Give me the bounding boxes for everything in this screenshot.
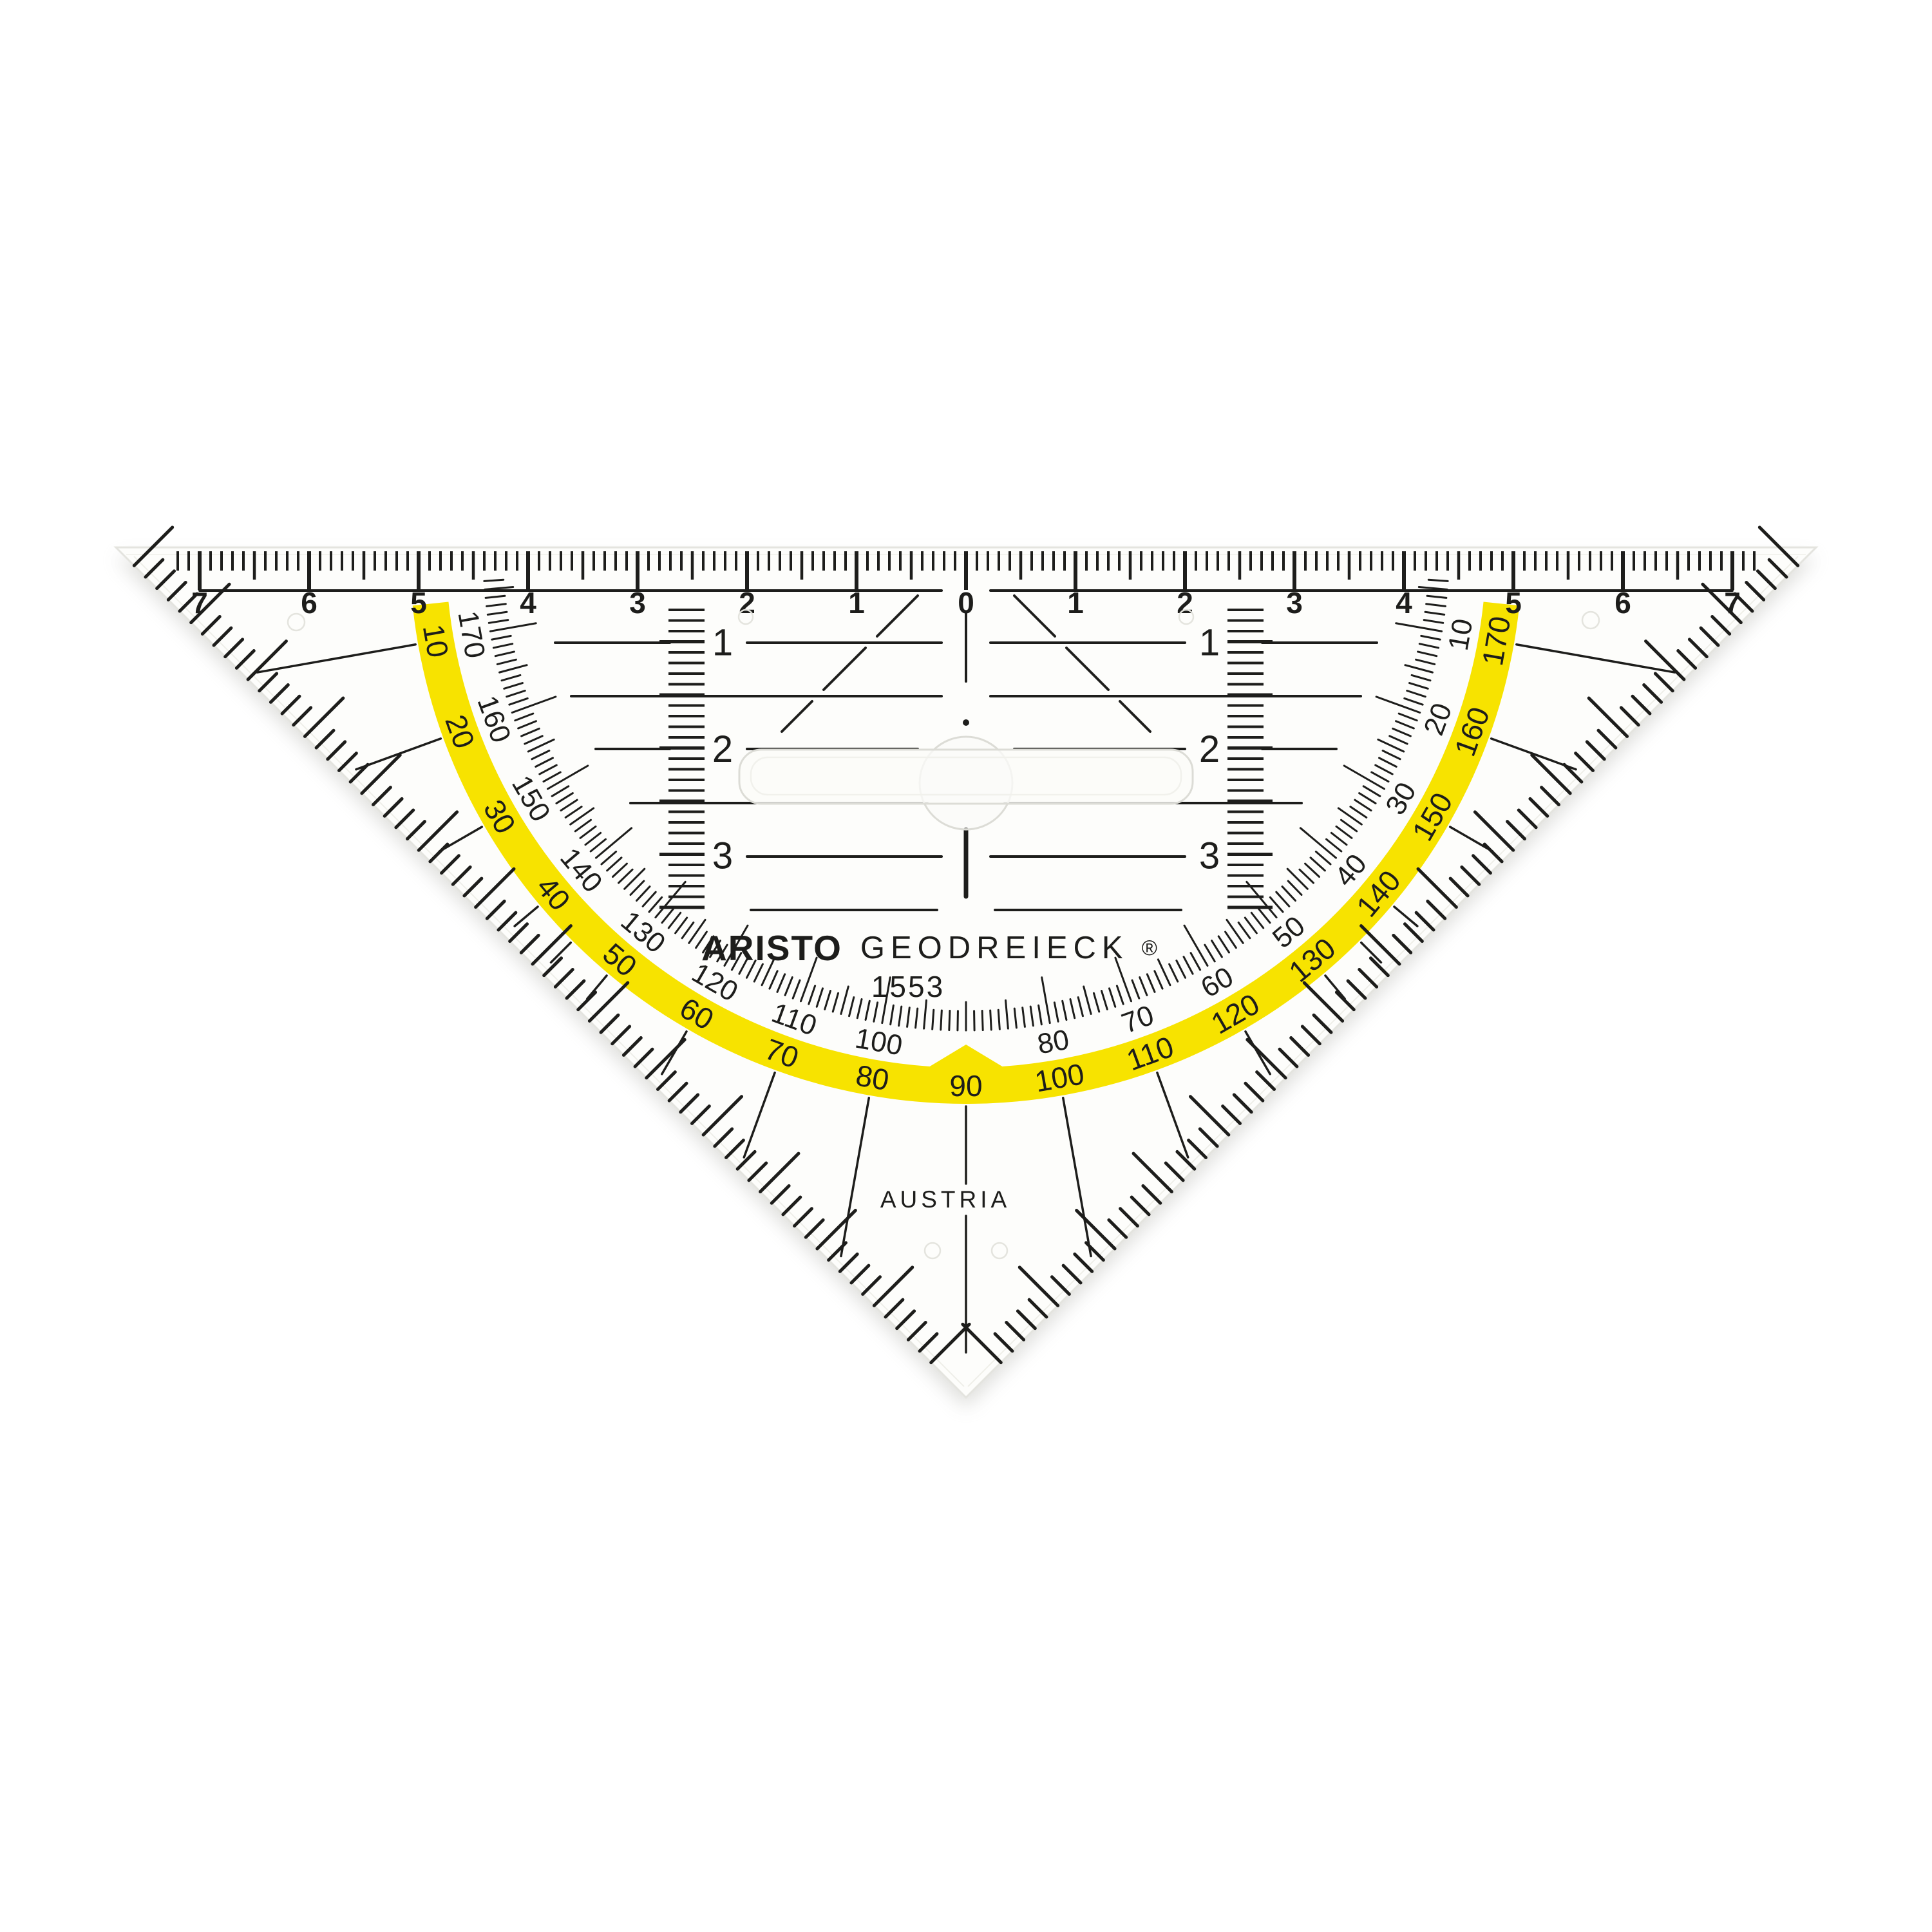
origin-label: AUSTRIA: [880, 1186, 1010, 1213]
svg-text:10: 10: [417, 621, 455, 659]
registered-mark: ®: [1142, 936, 1157, 960]
svg-text:1: 1: [712, 622, 733, 664]
geodreieck-product-photo: 0123456712345671122331020304050607080100…: [0, 0, 1932, 1932]
svg-text:2: 2: [1199, 728, 1220, 770]
svg-text:2: 2: [712, 728, 733, 770]
centre-dot: [963, 719, 969, 726]
svg-text:10: 10: [1443, 616, 1479, 653]
svg-text:80: 80: [1035, 1024, 1072, 1061]
svg-text:90: 90: [949, 1069, 982, 1103]
product-name: GEODREIECK: [860, 930, 1129, 966]
svg-text:1: 1: [1199, 622, 1220, 664]
brand-row: ARISTO GEODREIECK ®: [701, 927, 1157, 969]
svg-text:3: 3: [712, 835, 733, 877]
model-number: 1553: [871, 969, 945, 1004]
aristo-logo: ARISTO: [701, 927, 842, 969]
svg-text:3: 3: [1199, 835, 1220, 877]
svg-text:80: 80: [853, 1058, 891, 1097]
